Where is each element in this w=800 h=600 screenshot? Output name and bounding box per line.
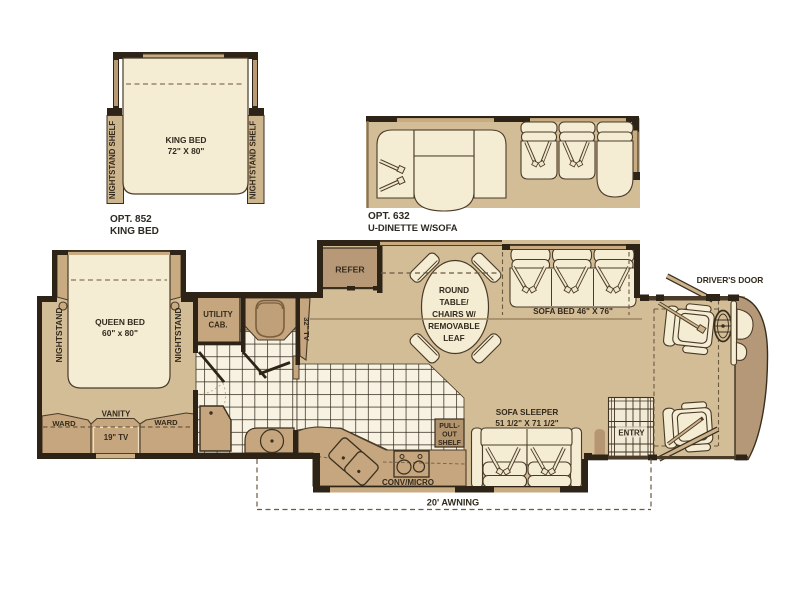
svg-text:OPT. 852: OPT. 852 — [110, 214, 152, 225]
svg-text:72" X 80": 72" X 80" — [168, 146, 205, 156]
svg-text:REMOVABLE: REMOVABLE — [428, 322, 480, 331]
svg-text:LEAF: LEAF — [443, 334, 464, 343]
svg-text:WARD: WARD — [154, 418, 178, 427]
svg-text:32" TV: 32" TV — [302, 317, 311, 341]
svg-text:OUT: OUT — [442, 432, 458, 439]
svg-text:19" TV: 19" TV — [104, 433, 129, 442]
svg-text:U-DINETTE W/SOFA: U-DINETTE W/SOFA — [368, 222, 458, 233]
svg-text:CHAIRS W/: CHAIRS W/ — [432, 310, 476, 319]
svg-text:KING BED: KING BED — [166, 135, 207, 145]
svg-text:WARD: WARD — [52, 419, 76, 428]
svg-text:KING BED: KING BED — [110, 226, 159, 237]
svg-text:60" x 80": 60" x 80" — [102, 328, 138, 338]
svg-text:CONV/MICRO: CONV/MICRO — [382, 478, 434, 487]
svg-text:SOFA SLEEPER: SOFA SLEEPER — [496, 408, 559, 417]
svg-text:TABLE/: TABLE/ — [440, 298, 470, 307]
svg-text:51 1/2" X 71 1/2": 51 1/2" X 71 1/2" — [495, 419, 558, 428]
svg-text:SOFA BED 46" X 76": SOFA BED 46" X 76" — [533, 307, 613, 316]
svg-text:NIGHTSTAND: NIGHTSTAND — [173, 307, 183, 362]
svg-text:NIGHTSTAND SHELF: NIGHTSTAND SHELF — [249, 121, 258, 199]
svg-text:OPT. 632: OPT. 632 — [368, 211, 410, 222]
svg-text:SHELF: SHELF — [438, 440, 462, 447]
svg-text:20' AWNING: 20' AWNING — [427, 498, 479, 508]
svg-text:REFER: REFER — [335, 265, 365, 275]
svg-text:ENTRY: ENTRY — [618, 429, 645, 438]
svg-text:ROUND: ROUND — [439, 286, 469, 295]
svg-text:NIGHTSTAND SHELF: NIGHTSTAND SHELF — [108, 121, 117, 199]
svg-text:QUEEN BED: QUEEN BED — [95, 317, 145, 327]
svg-text:PULL-: PULL- — [439, 423, 460, 430]
svg-text:UTILITY: UTILITY — [203, 310, 233, 319]
svg-text:VANITY: VANITY — [102, 410, 131, 419]
svg-text:DRIVER'S DOOR: DRIVER'S DOOR — [697, 275, 764, 285]
svg-text:NIGHTSTAND: NIGHTSTAND — [54, 307, 64, 362]
svg-text:CAB.: CAB. — [208, 321, 227, 330]
